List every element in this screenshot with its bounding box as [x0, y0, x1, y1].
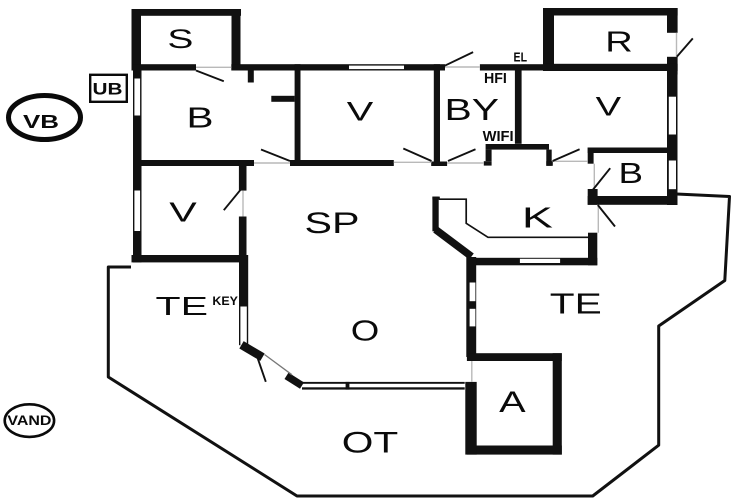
svg-text:KEY: KEY [212, 294, 238, 308]
svg-text:O: O [351, 316, 380, 348]
svg-text:S: S [167, 24, 193, 54]
svg-text:OT: OT [342, 427, 399, 460]
svg-text:TE: TE [156, 291, 209, 321]
svg-text:V: V [169, 197, 197, 228]
svg-text:UB: UB [93, 80, 123, 98]
svg-text:TE: TE [550, 289, 602, 321]
svg-text:EL: EL [514, 50, 528, 65]
svg-text:V: V [596, 91, 622, 121]
svg-text:B: B [187, 103, 214, 135]
svg-text:K: K [522, 202, 554, 234]
svg-text:HFI: HFI [484, 70, 507, 87]
svg-text:B: B [619, 158, 644, 190]
svg-text:WIFI: WIFI [483, 128, 514, 145]
svg-text:A: A [499, 386, 526, 419]
svg-text:VAND: VAND [7, 412, 51, 428]
svg-text:VB: VB [23, 112, 59, 132]
svg-text:BY: BY [445, 92, 500, 127]
svg-text:R: R [605, 26, 633, 58]
svg-text:V: V [347, 96, 374, 126]
svg-text:SP: SP [305, 207, 360, 240]
